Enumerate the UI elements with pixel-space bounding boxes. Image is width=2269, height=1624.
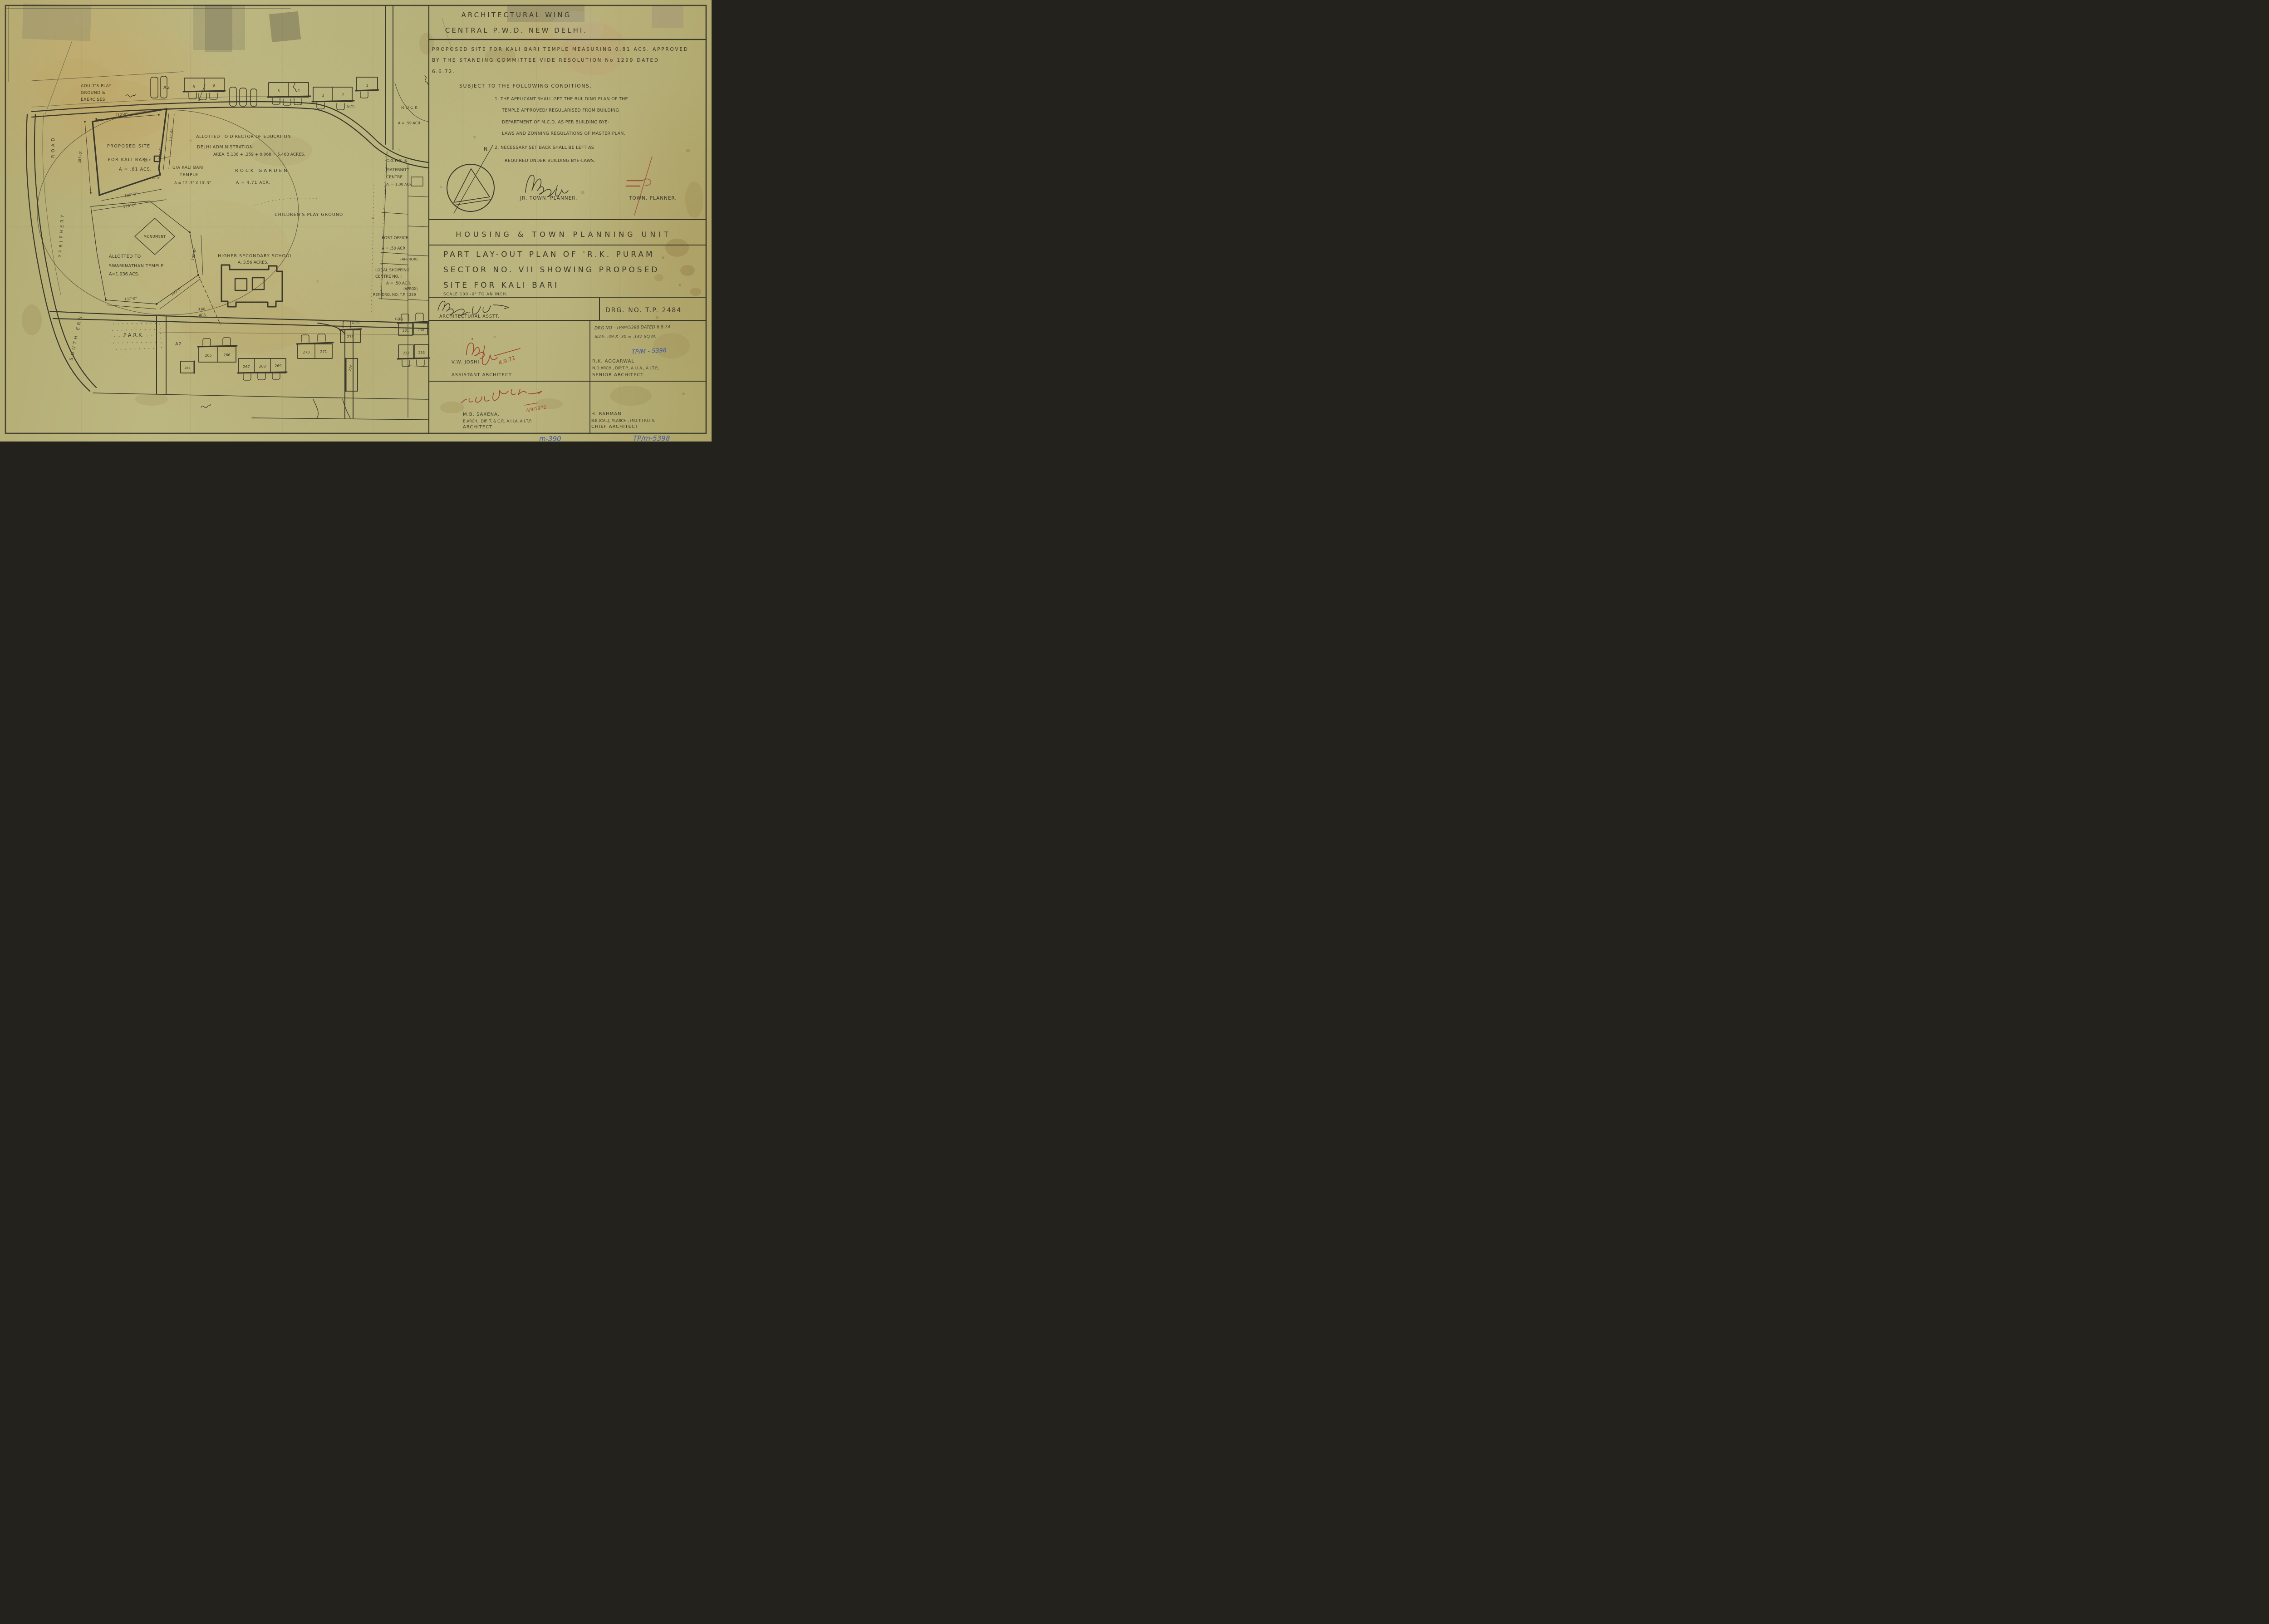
saxena-signature	[525, 403, 537, 405]
education-allotment-label: DELHI ADMINISTRATION	[197, 145, 253, 150]
house-231: 231	[403, 329, 409, 333]
house-3: 3	[322, 93, 324, 98]
dim-131: 131'-6"	[169, 129, 174, 142]
rahman-cell: H. RAHMAN B.E.(CAL), M.ARCH., (M.I.T.) F…	[591, 412, 655, 429]
plan-title: SITE FOR KALI BARI	[443, 281, 559, 290]
school-label: HIGHER SECONDARY SCHOOL	[218, 254, 293, 259]
org-title: ARCHITECTURAL WING	[462, 11, 572, 19]
north-letter: N	[484, 146, 487, 152]
dim-10-3: 10'-3"	[152, 177, 160, 180]
scale-note: SCALE 100'-0" TO AN INCH.	[443, 292, 508, 297]
post-office-label: (APPROX)	[400, 257, 417, 261]
house-1: 1	[366, 83, 368, 88]
condition-2: 2. NECESSARY SET BACK SHALL BE LEFT AS	[495, 145, 594, 150]
margin-blue-note: TP/m-5398	[633, 434, 670, 442]
saxena-cell: 4/9/1972 M.B. SAXENA. B.ARCH., DIP. T. &…	[461, 389, 547, 430]
drg-number-box: ARCHITECTURAL ASSTT. DRG. NO. T.P. 2484	[438, 301, 682, 319]
drawing-number: DRG. NO. T.P. 2484	[605, 307, 682, 314]
swaminathan-label: ALLOTTED TO	[109, 254, 141, 259]
rahman-name: H. RAHMAN	[591, 412, 622, 417]
proposed-site-label: FOR KALI BARI	[108, 157, 148, 162]
dim-137: 137'-0"	[124, 296, 137, 301]
adults-playground-label: GROUND &	[81, 91, 105, 95]
saxena-quals: B.ARCH., DIP. T. & C.P., A.I.I.A. A.I.T.…	[463, 419, 532, 423]
house-230: 230	[417, 328, 424, 332]
unit-title: HOUSING & TOWN PLANNING UNIT	[456, 230, 672, 239]
dim-185-left: 185'-0"	[77, 151, 83, 163]
dim-068: ACS.	[199, 313, 206, 317]
aggarwal-quals: N.D.ARCH., DIP.T.P., A.I.I.A., A.I.T.P.,	[592, 366, 659, 371]
margin-blue-note: m-390	[539, 435, 561, 442]
house-266: 266	[223, 353, 230, 357]
shopping-centre-label: A = .50 ACR.	[386, 281, 411, 286]
saxena-signature	[461, 389, 542, 403]
rock-label: ROCK	[401, 105, 419, 110]
drawing-sheet: ADULT'S PLAY GROUND & EXERCISES A2 A2 G(…	[0, 0, 712, 442]
gy-top-label: G(Y)	[347, 104, 354, 108]
approval-note: PROPOSED SITE FOR KALI BARI TEMPLE MEASU…	[432, 47, 689, 163]
house-270: 270	[303, 350, 309, 354]
condition-1: DEPARTMENT OF M.C.D. AS PER BUILDING BYE…	[502, 120, 609, 125]
school-label: A. 3.56 ACRES.	[238, 260, 268, 265]
shopping-centre-label: CENTRE NO. I	[375, 275, 402, 279]
town-planner-label: TOWN. PLANNER.	[629, 196, 677, 201]
house-232: 232	[403, 351, 410, 355]
condition-2: REQUIRED UNDER BUILDING BYE-LAWS.	[505, 158, 595, 163]
gr-label: G(R)	[395, 317, 403, 321]
house-269: 269	[275, 364, 281, 368]
gy-bottom-label: G(Y)	[352, 321, 359, 325]
house-271: 271	[320, 350, 327, 354]
margin-notes: m-390 TP/m-5398	[539, 434, 670, 442]
periphery-road-label: ROAD	[51, 136, 56, 158]
dim-185-right: 185'-0"	[158, 147, 163, 160]
proposed-site-label: A = .81 ACS.	[119, 167, 152, 172]
approval-text: 6.6.72.	[432, 69, 455, 74]
plan-title: PART LAY-OUT PLAN OF 'R.K. PURAM	[443, 250, 655, 259]
childrens-playground-label: CHILDREN'S PLAY GROUND	[275, 212, 343, 217]
saxena-role: ARCHITECT	[463, 425, 492, 430]
drg-note-handwritten: DRG NO - TP/M/5398 DATED 6.8.74	[594, 324, 670, 331]
house-9: 9	[193, 84, 195, 88]
monument-label: MONUMENT	[144, 235, 166, 239]
aggarwal-cell: DRG NO - TP/M/5398 DATED 6.8.74 SIZE: .4…	[592, 324, 670, 378]
periphery-road-label: PERIPHERY	[58, 212, 65, 258]
aggarwal-name: R.K. AGGARWAL	[592, 359, 634, 364]
title-block: PART LAY-OUT PLAN OF 'R.K. PURAM SECTOR …	[443, 250, 659, 297]
dim-170: 170'-0"	[123, 203, 137, 209]
condition-1: LAWS AND ZONNING REGULATIONS OF MASTER P…	[502, 131, 625, 136]
block-a2-top-label: A2	[163, 85, 170, 90]
approval-text: PROPOSED SITE FOR KALI BARI TEMPLE MEASU…	[432, 47, 689, 52]
dim-180: 180'-0"	[124, 192, 138, 198]
condition-1: TEMPLE APPROVED/ REGULARISED FROM BUILDI…	[501, 108, 619, 113]
adults-playground-label: ADULT'S PLAY	[81, 84, 112, 88]
size-note-handwritten: SIZE: .49 X .30 = .147 SQ M.	[594, 334, 656, 339]
jr-town-planner-label: JR. TOWN. PLANNER.	[520, 196, 578, 201]
aggarwal-role: SENIOR ARCHITECT.	[592, 373, 645, 378]
block-a2-bottom-label: A2	[175, 342, 182, 347]
house-5: 5	[277, 89, 280, 93]
condition-1: 1. THE APPLICANT SHALL GET THE BUILDING …	[495, 97, 628, 102]
arch-asstt-label: ARCHITECTURAL ASSTT.	[439, 314, 500, 319]
house-273: 273	[347, 335, 354, 339]
joshi-cell: 4.9.72 V.W. JOSHI ASSISTANT ARCHITECT	[452, 339, 520, 378]
plan-title: SECTOR NO. VII SHOWING PROPOSED	[443, 265, 659, 275]
temple-note: A = 12'-3" X 10'-3"	[174, 181, 211, 186]
cghs-label: A. = 1.00 ACR	[386, 182, 412, 186]
shopping-centre-label: (APROX)	[403, 287, 417, 291]
house-4: 4	[297, 88, 300, 93]
town-planner-signature	[626, 181, 643, 186]
house-264: 264	[184, 366, 191, 370]
joshi-name: V.W. JOSHI	[452, 360, 479, 365]
education-allotment-label: ALLOTTED TO DIRECTOR OF EDUCATION	[196, 134, 291, 139]
house-265: 265	[205, 353, 211, 358]
joshi-date: 4.9.72	[498, 355, 516, 366]
rock-garden-label: A = 4.71 ACR.	[236, 181, 270, 185]
house-268: 268	[259, 364, 265, 368]
rahman-quals: B.E.(CAL), M.ARCH., (M.I.T.) F.I.I.A.	[591, 418, 655, 423]
planner-signoffs: JR. TOWN. PLANNER. TOWN. PLANNER.	[520, 157, 677, 215]
approval-text: BY THE STANDING COMMITTEE VIDE RESOLUTIO…	[432, 58, 659, 63]
swaminathan-label: A=1.036 ACS.	[109, 272, 139, 277]
swaminathan-label: SWAMINATHAN TEMPLE	[109, 264, 164, 269]
stains	[22, 33, 703, 413]
jr-town-planner-signature	[526, 175, 568, 197]
cghs-label: MATERNITY	[386, 168, 410, 172]
house-2: 2	[342, 93, 344, 97]
dim-068: 0.68	[198, 307, 206, 311]
rahman-role: CHIEF ARCHITECT	[591, 424, 638, 429]
saxena-name: M.B. SAXENA.	[463, 412, 500, 417]
post-office-label: A = .50 ACR	[382, 246, 405, 251]
house-267: 267	[243, 365, 250, 369]
rock-area-label: A = .59 ACR.	[398, 121, 421, 125]
proposed-site-label: PROPOSED SITE	[107, 144, 151, 149]
post-office-label: POST OFFICE	[382, 236, 408, 240]
cghs-label: CENTRE	[386, 175, 403, 180]
cghs-label: C.G.H.S. &	[386, 159, 408, 163]
plan-canvas: ADULT'S PLAY GROUND & EXERCISES A2 A2 G(…	[0, 0, 712, 442]
house-8: 8	[213, 84, 215, 88]
dim-210: 210'-0"	[115, 112, 128, 117]
conditions-heading: SUBJECT TO THE FOLLOWING CONDITIONS.	[459, 83, 592, 89]
adults-playground-label: EXERCISES	[81, 98, 105, 102]
park-label: PARK	[123, 332, 143, 338]
dim-12-3: 12'-3"	[143, 158, 152, 162]
temple-note: U/A KALI BARI	[172, 166, 204, 170]
rock-garden-label: ROCK GARDEN	[235, 168, 289, 173]
org-subtitle: CENTRAL P.W.D. NEW DELHI.	[445, 26, 588, 34]
shopping-centre-label: REF. DRG. NO. T.P. 1339	[373, 293, 416, 297]
house-233: 233	[418, 351, 425, 355]
education-allotment-label: AREA. 5.136 + .259 + 0.068 = 5.463 ACRES…	[213, 152, 305, 157]
shopping-centre-label: LOCAL SHOPPING	[375, 268, 409, 273]
temple-note: TEMPLE	[179, 173, 198, 177]
north-compass: N	[447, 145, 494, 213]
joshi-role: ASSISTANT ARCHITECT	[452, 373, 512, 378]
